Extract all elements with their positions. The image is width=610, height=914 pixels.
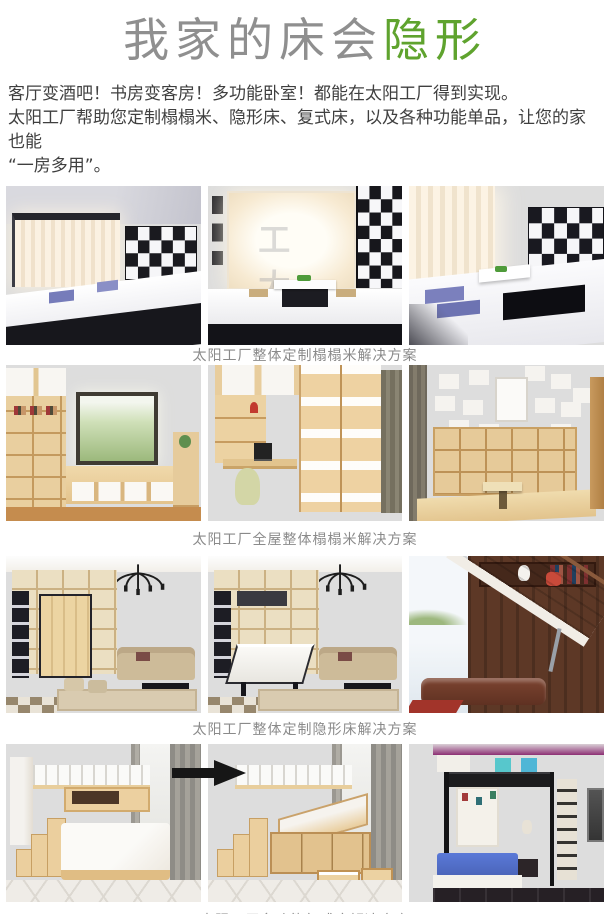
intro-line-1: 客厅变酒吧！书房变客房！多功能卧室！都能在太阳工厂得到实现。 xyxy=(8,82,602,106)
intro-text: 客厅变酒吧！书房变客房！多功能卧室！都能在太阳工厂得到实现。 太阳工厂帮助您定制… xyxy=(8,82,602,178)
photo-murphy-bed-open xyxy=(208,556,403,713)
caption-row-2: 太阳工厂全屋整体榻榻米解决方案 xyxy=(0,521,610,556)
photo-murphy-bed-walnut-closeup xyxy=(409,556,604,713)
photo-tatami-window-room xyxy=(6,186,201,345)
section-loft-bed: 太阳工厂多功能复式床解决方案 xyxy=(0,744,610,914)
section-tatami-whole-house: 太阳工厂全屋整体榻榻米解决方案 xyxy=(0,365,610,556)
page-title: 我家的床会隐形 xyxy=(8,14,602,66)
photo-tatami-tea-table-room: 工太 xyxy=(208,186,403,345)
page-title-green: 隐形 xyxy=(383,13,487,67)
page-title-gray: 我家的床会 xyxy=(123,13,383,67)
photo-murphy-bed-closed xyxy=(6,556,201,713)
photo-metal-loft-bed-purple-room xyxy=(409,744,604,902)
photo-wood-desk-wardrobe xyxy=(208,365,403,521)
photo-wood-shelf-photo-wall xyxy=(409,365,604,521)
page-header: 我家的床会隐形 客厅变酒吧！书房变客房！多功能卧室！都能在太阳工厂得到实现。 太… xyxy=(0,0,610,186)
arrow-right-icon xyxy=(172,758,248,788)
intro-line-2: 太阳工厂帮助您定制榻榻米、隐形床、复式床，以及各种功能单品，让您的家也能 xyxy=(8,106,602,154)
intro-line-3: “一房多用”。 xyxy=(8,154,602,178)
caption-row-4: 太阳工厂多功能复式床解决方案 xyxy=(0,902,610,914)
caption-row-3: 太阳工厂整体定制隐形床解决方案 xyxy=(0,713,610,744)
product-detail-page: 我家的床会隐形 客厅变酒吧！书房变客房！多功能卧室！都能在太阳工厂得到实现。 太… xyxy=(0,0,610,914)
caption-text-3: 太阳工厂整体定制隐形床解决方案 xyxy=(193,719,418,739)
caption-row-1: 太阳工厂整体定制榻榻米解决方案 xyxy=(0,345,610,365)
section-hidden-bed: 太阳工厂整体定制隐形床解决方案 xyxy=(0,556,610,744)
caption-text-4: 太阳工厂多功能复式床解决方案 xyxy=(200,910,410,914)
caption-text-2: 太阳工厂全屋整体榻榻米解决方案 xyxy=(193,529,418,549)
caption-text-1: 太阳工厂整体定制榻榻米解决方案 xyxy=(193,345,418,365)
photo-tatami-corner-room xyxy=(409,186,604,345)
photo-wood-bookcase-bay-window xyxy=(6,365,201,521)
section-tatami-custom: 工太 太阳工厂整体定制榻榻米解决方案 xyxy=(0,186,610,365)
